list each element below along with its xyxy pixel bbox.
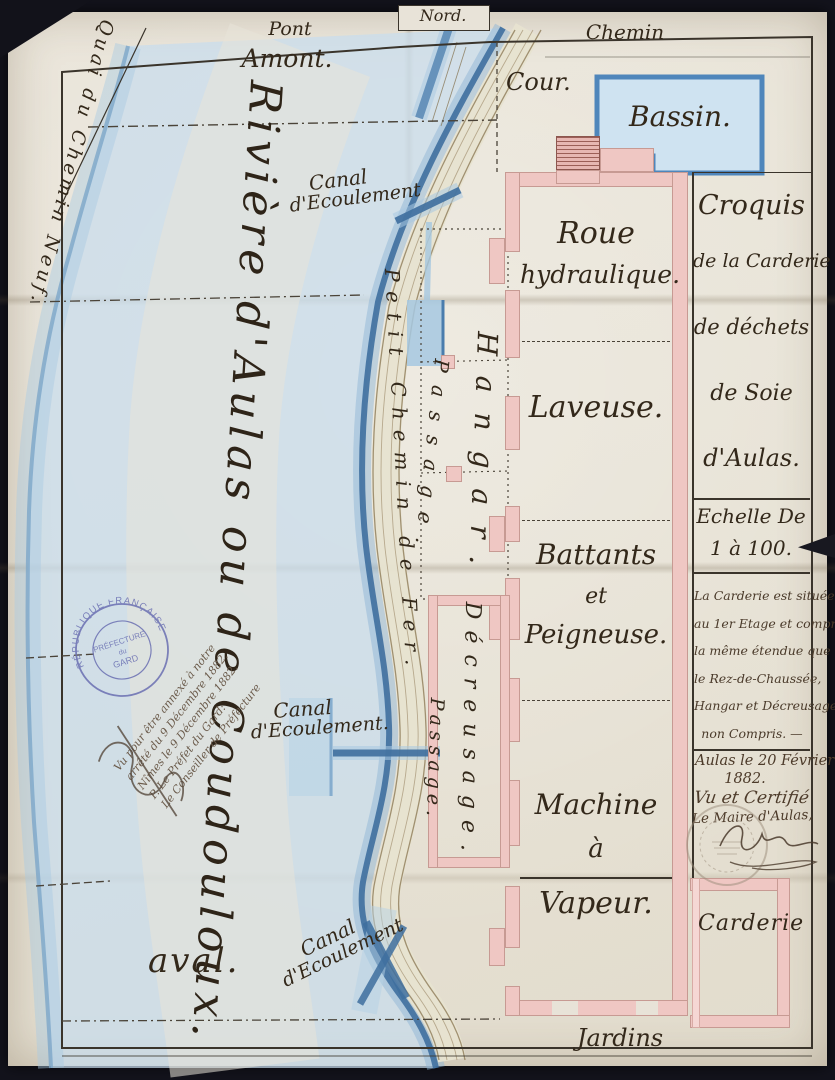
jardins-label: Jardins <box>540 1026 700 1051</box>
maire-signature <box>712 812 827 882</box>
amont-label: Amont. <box>232 46 342 72</box>
machine-label-line3: Vapeur. <box>520 888 672 920</box>
scanned-map-plan: Nord. Pont Amont. Chemin Cour. Bassin. Q… <box>0 0 835 1080</box>
carderie-left-wall <box>692 878 700 1028</box>
room-separator <box>522 700 670 701</box>
panel-rule <box>693 498 810 500</box>
panel-title-line5: d'Aulas. <box>693 446 810 471</box>
note-line: la même étendue que <box>694 637 810 665</box>
bassin-label: Bassin. <box>600 102 760 131</box>
pont-label: Pont <box>250 20 330 40</box>
bassin-step-wall <box>600 148 654 172</box>
room-separator <box>522 520 670 521</box>
north-label: Nord. <box>399 8 487 25</box>
note-line: au 1er Etage et comprend <box>694 610 810 638</box>
panel-note: La Carderie est située au 1er Etage et c… <box>694 582 810 747</box>
wheel-channel <box>407 300 443 366</box>
mill-bottom-wall <box>505 1000 688 1016</box>
wheel-channel-feed <box>427 222 429 300</box>
room-separator <box>522 341 670 342</box>
north-box: Nord. <box>398 5 490 31</box>
decreusage-label: Décreusage. <box>456 602 484 863</box>
bassin-steps <box>556 136 600 170</box>
aval-label: aval. <box>148 944 239 980</box>
cour-label: Cour. <box>506 70 571 95</box>
bassin-step-wall <box>556 170 600 184</box>
laveuse-label: Laveuse. <box>520 392 672 424</box>
carderie-label: Carderie <box>698 912 804 935</box>
mill-left-wall-segment <box>505 506 520 542</box>
battants-label-line1: Battants <box>520 540 672 569</box>
note-line: le Rez-de-Chaussée, <box>694 665 810 693</box>
panel-top-rule <box>692 172 812 173</box>
panel-rule <box>693 749 810 751</box>
machine-label-line2: à <box>520 836 672 863</box>
hangar-post <box>446 466 462 482</box>
mill-left-wall-segment <box>505 290 520 358</box>
wall-pier <box>489 238 505 284</box>
battants-label-line3: Peigneuse. <box>520 622 672 649</box>
battants-label-line2: et <box>520 585 672 608</box>
scale-line1: Echelle De <box>695 506 807 527</box>
machine-label-line1: Machine <box>520 790 672 819</box>
roue-label-line1: Roue <box>520 218 672 250</box>
chemin-label: Chemin <box>580 22 670 43</box>
panel-title-line2: de la Carderie <box>693 252 810 272</box>
panel-rule <box>693 572 810 574</box>
panel-title-line3: de déchets <box>693 316 810 338</box>
carderie-bottom-wall <box>690 1015 790 1028</box>
note-line: non Compris. — <box>694 720 810 748</box>
mill-left-wall-segment <box>505 172 520 252</box>
note-line: La Carderie est située <box>694 582 810 610</box>
passage-lower-label: Passage. <box>422 697 446 821</box>
stamp-center-line3: GARD <box>112 652 140 670</box>
roue-label-line2: hydraulique. <box>520 262 672 288</box>
note-line: Hangar et Décreusage <box>694 692 810 720</box>
room-separator-solid <box>520 877 672 879</box>
decreusage-right-wall <box>500 595 510 868</box>
panel-title-line1: Croquis <box>693 192 810 220</box>
mill-left-wall-segment <box>505 986 520 1016</box>
panel-title-line4: de Soie <box>693 382 810 405</box>
mill-left-wall-segment <box>505 396 520 450</box>
mill-left-wall-segment <box>505 886 520 948</box>
wall-pier <box>489 928 505 966</box>
hangar-label: Hangar. <box>464 331 502 585</box>
carderie-right-wall <box>777 878 790 1028</box>
date-line1: Aulas le 20 Février <box>695 754 834 769</box>
date-line2: 1882. <box>695 772 795 787</box>
wall-gap <box>636 1001 658 1015</box>
panel-left-rule <box>692 172 694 878</box>
scale-line2: 1 à 100. <box>695 538 807 559</box>
wall-gap <box>552 1001 578 1015</box>
